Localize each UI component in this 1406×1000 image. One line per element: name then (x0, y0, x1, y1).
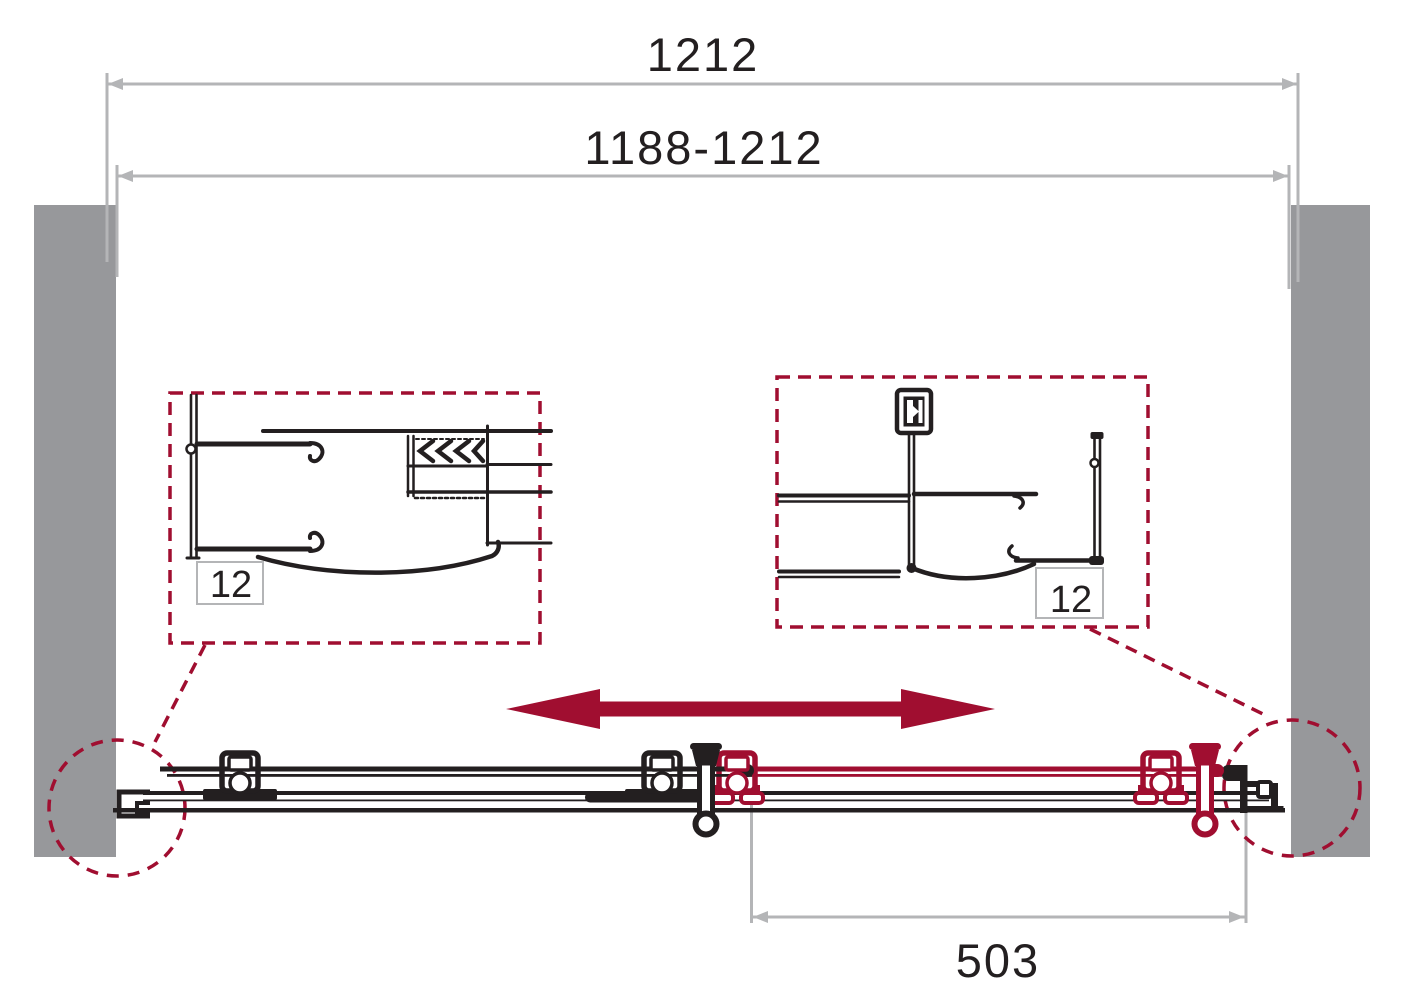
shower-door-dimension-diagram: 12 12 1212 1188-1212 503 (0, 0, 1406, 1000)
wall-right (1291, 205, 1370, 857)
dim-arrow-right (1282, 78, 1297, 90)
track-end-cap-right (1222, 765, 1284, 813)
dim-range (117, 165, 1289, 289)
roller-wheel (230, 773, 250, 793)
roller-bracket-inner-sliding (726, 757, 748, 793)
dim-arrow-right (1229, 911, 1244, 923)
roller-wheel (1151, 773, 1171, 793)
wall-left (34, 205, 116, 857)
left-profile-thickness: 12 (210, 564, 252, 606)
detail-leader-left (155, 645, 205, 742)
dim-arrow-left (753, 911, 768, 923)
door-width-label: 503 (956, 934, 1040, 987)
detail-leader-right (1090, 629, 1267, 716)
right-profile-detail (779, 390, 1104, 578)
adjust-chevron (420, 441, 433, 461)
dim-door (752, 911, 1245, 923)
roller-bracket-inner-sliding (1150, 757, 1172, 793)
roller-bracket-inner (229, 757, 251, 793)
detail-label-left-box: 12 (197, 562, 263, 606)
slide-direction-arrow (506, 689, 995, 729)
dim-arrow-right (1273, 170, 1288, 182)
right-profile-thickness: 12 (1050, 579, 1092, 621)
knob-ring (696, 814, 717, 835)
knob-ring (1195, 814, 1216, 835)
adjust-chevron (438, 441, 451, 461)
diagram-drawing: 12 12 1212 1188-1212 503 (0, 0, 1406, 1000)
adjust-chevron (474, 441, 483, 461)
dim-arrow-left (118, 170, 133, 182)
adjust-chevron (456, 441, 469, 461)
roller-bracket-inner (651, 757, 673, 793)
adjustment-range-label: 1188-1212 (584, 121, 823, 174)
overall-width-label: 1212 (647, 28, 760, 81)
left-profile-detail (187, 395, 552, 573)
door-knob-sliding (1189, 743, 1221, 835)
roller-wheel (652, 773, 672, 793)
dim-arrow-left (108, 78, 123, 90)
detail-label-right-box: 12 (1036, 568, 1103, 621)
roller-wheel (727, 773, 747, 793)
